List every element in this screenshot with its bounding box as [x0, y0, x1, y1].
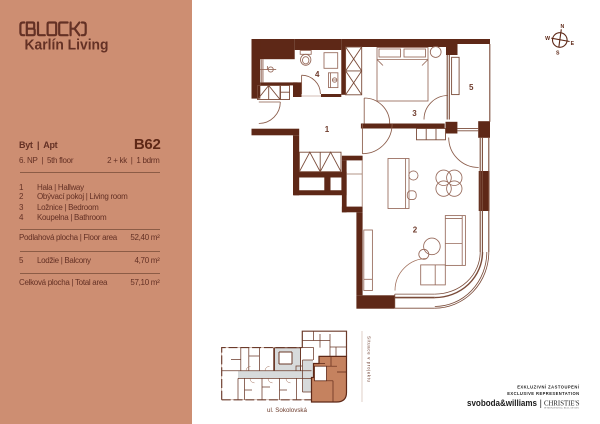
svg-text:N: N	[561, 24, 565, 30]
svg-text:svoboda&williams: svoboda&williams	[467, 398, 537, 408]
svg-text:CHRISTIE'S: CHRISTIE'S	[544, 398, 580, 407]
svg-text:INTERNATIONAL REAL ESTATE: INTERNATIONAL REAL ESTATE	[544, 407, 580, 410]
svg-text:Situace v projektu: Situace v projektu	[367, 336, 372, 383]
svg-text:E: E	[571, 41, 575, 47]
svg-text:1: 1	[325, 125, 330, 134]
svg-text:ul. Sokolovská: ul. Sokolovská	[267, 407, 307, 414]
svg-text:5: 5	[469, 83, 474, 92]
svg-text:4: 4	[315, 70, 320, 79]
svg-text:EXKLUZIVNÍ ZASTOUPENÍ: EXKLUZIVNÍ ZASTOUPENÍ	[517, 385, 580, 390]
svg-text:|: |	[540, 398, 542, 409]
svg-text:3: 3	[412, 109, 417, 118]
svg-text:2: 2	[413, 226, 418, 235]
svg-text:S: S	[556, 51, 560, 57]
svg-text:EXCLUSIVE REPRESENTATION: EXCLUSIVE REPRESENTATION	[507, 391, 579, 396]
svg-text:W: W	[545, 36, 550, 42]
